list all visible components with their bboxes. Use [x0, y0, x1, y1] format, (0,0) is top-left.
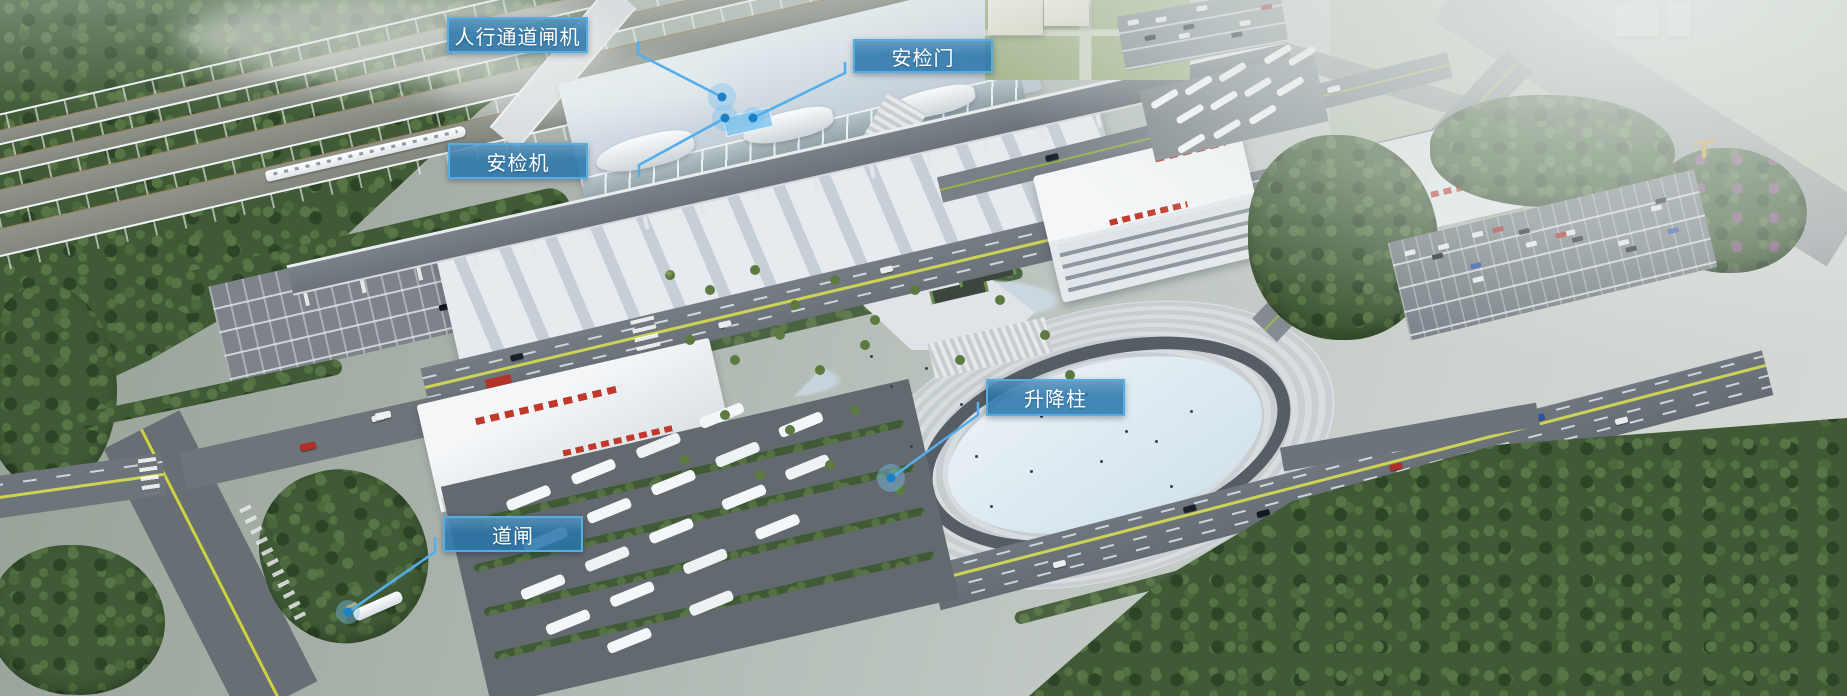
callout-label: 升降柱	[1024, 383, 1087, 412]
callout-security-scanner: 安检机	[448, 143, 588, 179]
road-barrier-gate-anchor-dot	[344, 608, 353, 617]
aerial-station-rendering: 人行通道闸机 安检门 安检机 升降柱 道闸	[0, 0, 1847, 696]
road-barrier-gate-leader-line	[348, 537, 435, 612]
annotation-layer-svg	[0, 0, 1847, 696]
security-scanner-leader-line	[639, 118, 725, 177]
callout-label: 道闸	[492, 520, 534, 549]
security-door-anchor-dot	[749, 114, 758, 123]
callout-lifting-bollard: 升降柱	[986, 379, 1125, 416]
lifting-bollard-anchor-dot	[887, 474, 896, 483]
callout-label: 安检门	[892, 42, 955, 71]
callout-security-door: 安检门	[853, 39, 993, 73]
callout-road-barrier-gate: 道闸	[443, 516, 583, 552]
callout-label: 人行通道闸机	[455, 21, 581, 50]
pedestrian-channel-gate-leader-line	[638, 41, 722, 97]
pedestrian-channel-gate-anchor-dot	[718, 93, 727, 102]
security-door-leader-line	[753, 62, 845, 118]
callout-pedestrian-channel-gate: 人行通道闸机	[447, 17, 588, 53]
lifting-bollard-leader-line	[891, 402, 978, 478]
callout-label: 安检机	[487, 147, 550, 176]
security-scanner-anchor-dot	[721, 114, 730, 123]
